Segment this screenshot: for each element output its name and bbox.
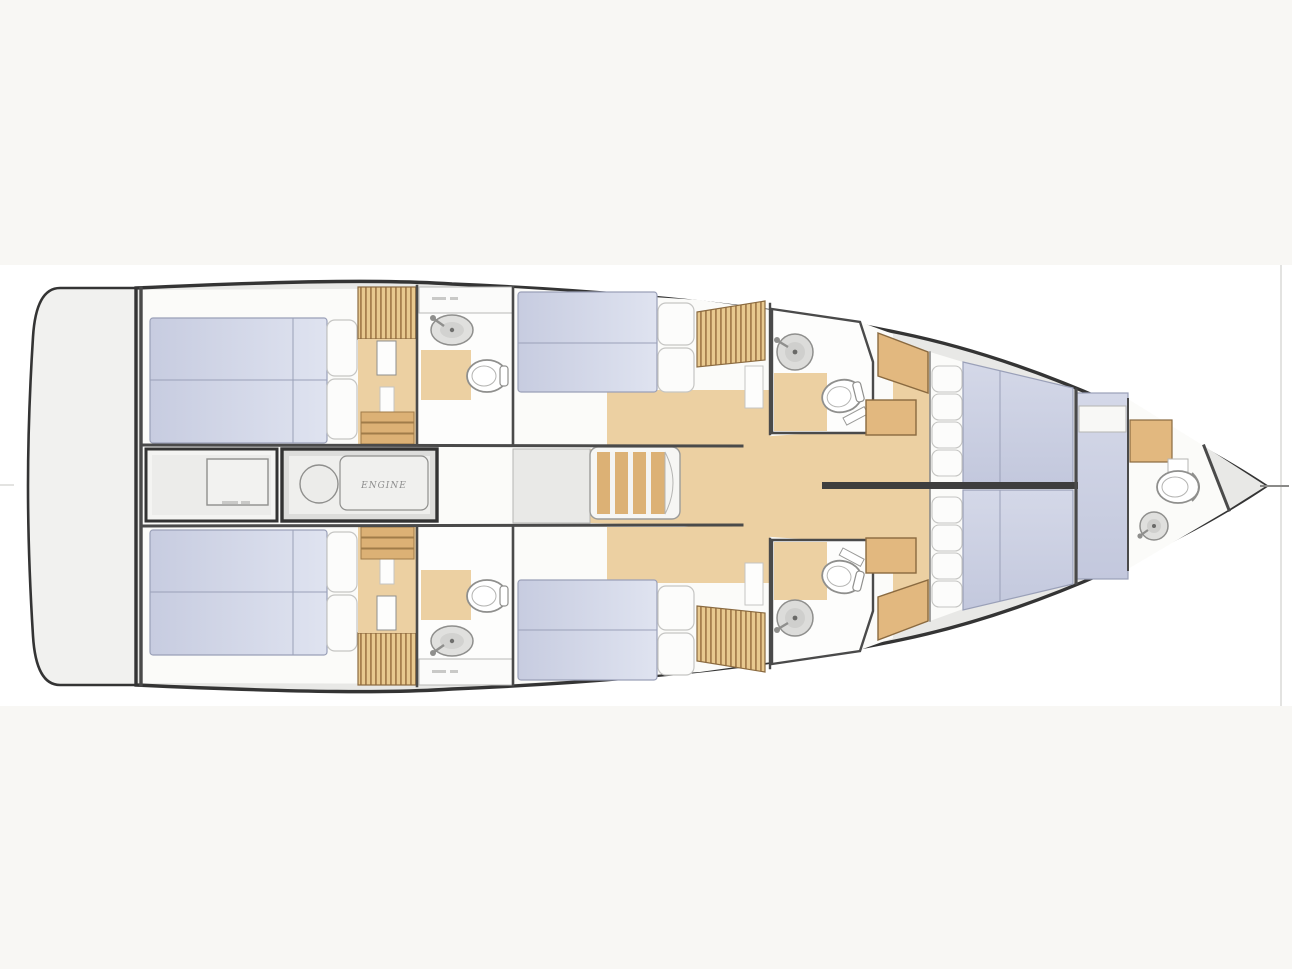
mid-port-wardrobe xyxy=(697,301,765,367)
stair-landing xyxy=(513,449,590,523)
stairs-icon xyxy=(597,452,673,514)
toilet-icon xyxy=(467,360,508,392)
mid-head-port xyxy=(772,309,873,433)
pillow xyxy=(658,303,694,345)
stern-swim-platform xyxy=(28,288,141,685)
engine-room: ENGINE xyxy=(146,449,437,521)
aft-stbd-wardrobe xyxy=(358,633,417,685)
micro-label-dash xyxy=(222,501,238,504)
aft-head-starboard xyxy=(419,527,513,685)
pillow xyxy=(327,320,357,376)
pillow xyxy=(932,394,962,420)
micro-label-dash xyxy=(241,501,250,504)
aft-head-port xyxy=(419,287,513,445)
sink-icon xyxy=(430,626,473,656)
nightstand xyxy=(745,366,763,408)
pillow xyxy=(327,379,357,439)
locker-post xyxy=(380,556,394,584)
engine-flywheel-icon xyxy=(300,465,338,503)
centerline-wall xyxy=(822,482,1078,489)
head-floor-mat xyxy=(774,373,827,431)
generator-unit-icon xyxy=(207,459,268,505)
micro-label-dash xyxy=(432,297,446,300)
micro-label-dash xyxy=(450,297,458,300)
nightstand xyxy=(745,563,763,605)
engine-room-label: ENGINE xyxy=(360,481,407,491)
head-floor-mat xyxy=(421,570,471,620)
toilet-icon xyxy=(467,580,508,612)
micro-label-dash xyxy=(432,670,446,673)
mid-head-starboard xyxy=(772,540,873,664)
micro-label-dash xyxy=(450,670,458,673)
toilet-icon xyxy=(1157,471,1199,503)
sink-icon xyxy=(430,315,473,345)
engine-fwd-wall-stbd xyxy=(141,525,742,526)
pillow xyxy=(932,553,962,579)
pillow xyxy=(658,348,694,392)
head-floor-mat xyxy=(774,542,827,600)
locker-door xyxy=(377,341,396,375)
pillow xyxy=(932,525,962,551)
bow-locker-shelf xyxy=(1079,406,1126,432)
page: ENGINE xyxy=(0,0,1292,969)
aft-stbd-steps-icon xyxy=(361,527,414,559)
mid-stbd-wardrobe xyxy=(697,606,765,672)
cabinet-port-entry xyxy=(866,400,916,435)
locker-door xyxy=(377,596,396,630)
bow-cabinet xyxy=(1130,420,1172,462)
head-floor-mat xyxy=(421,350,471,400)
cabinet-stbd-entry xyxy=(866,538,916,573)
mid-port-bed-mattress xyxy=(518,292,657,392)
pillow xyxy=(327,532,357,592)
pillow xyxy=(658,586,694,630)
bow-shelf-box xyxy=(1168,459,1188,472)
engine-fwd-wall-port xyxy=(141,445,742,446)
yacht-layout-plan-diagram: ENGINE xyxy=(0,0,1292,969)
pillow xyxy=(932,450,962,476)
pillow xyxy=(932,366,962,392)
pillow xyxy=(932,497,962,523)
aft-port-wardrobe xyxy=(358,287,417,339)
pillow xyxy=(327,595,357,651)
locker-post xyxy=(380,387,394,415)
pillow xyxy=(658,633,694,675)
aft-port-steps-icon xyxy=(361,412,414,444)
pillow xyxy=(932,581,962,607)
pillow xyxy=(932,422,962,448)
companionway xyxy=(513,447,680,523)
